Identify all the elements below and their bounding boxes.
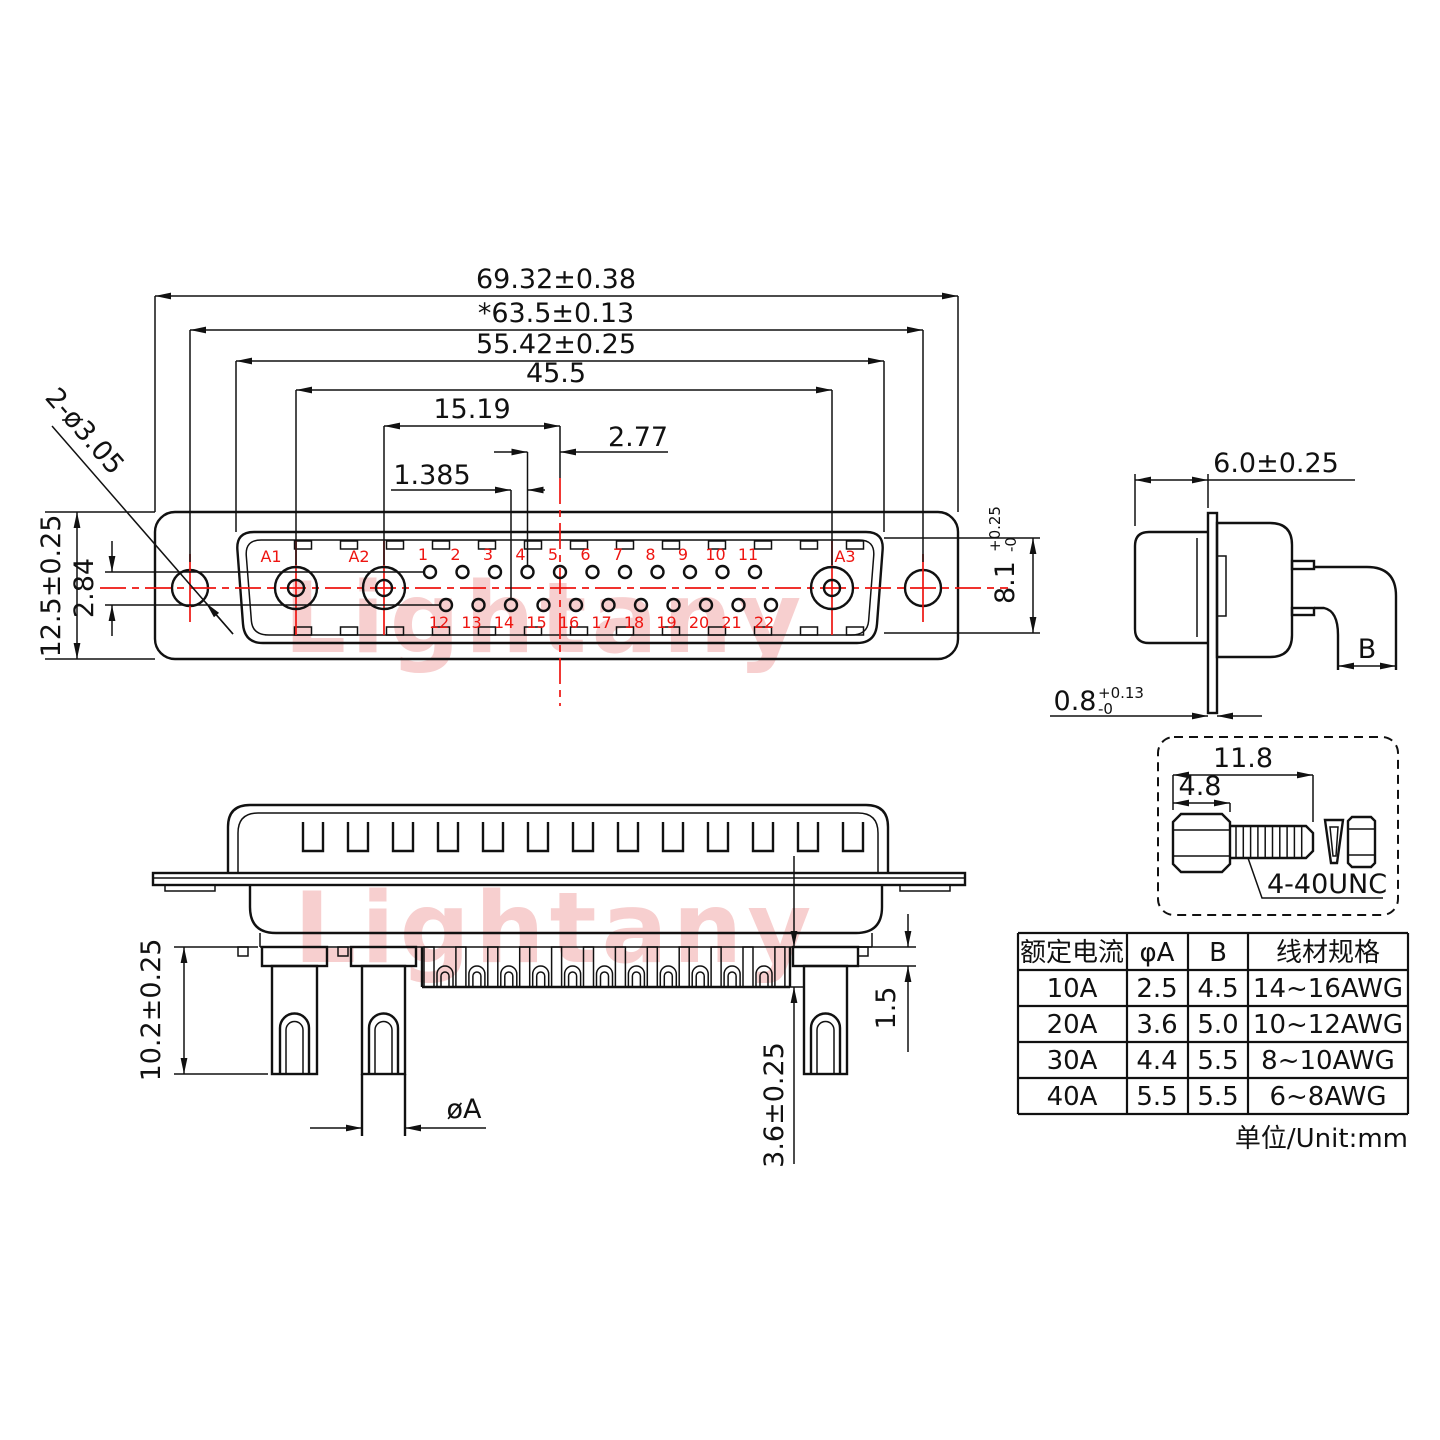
pin-label: 19 <box>656 613 676 632</box>
shell-slot <box>708 822 728 851</box>
technical-drawing-canvas: Lightany Lightany A1A2A31234567891011121… <box>0 0 1440 1440</box>
dim-flange-tol-minus: -0 <box>1098 700 1113 718</box>
pin-label: 8 <box>645 545 655 564</box>
pin-label: 2 <box>450 545 460 564</box>
pin-label: 16 <box>559 613 579 632</box>
table-cell: 20A <box>1047 1010 1098 1040</box>
pin-label: 11 <box>738 545 758 564</box>
pin-label: 17 <box>591 613 611 632</box>
thread-label: 4-40UNC <box>1267 869 1387 900</box>
pin-label: 20 <box>689 613 709 632</box>
table-header-phia: φA <box>1140 938 1175 968</box>
table-cell: 10~12AWG <box>1253 1010 1403 1040</box>
dim-flange-thickness: 0.8 <box>1054 686 1097 717</box>
pin-label: 4 <box>515 545 525 564</box>
pin-label: 9 <box>678 545 688 564</box>
table-header-current: 额定电流 <box>1020 938 1124 968</box>
shell-slot <box>393 822 413 851</box>
dim-pitch: 2.77 <box>608 422 668 453</box>
shell-slot <box>483 822 503 851</box>
shell-slot <box>303 822 323 851</box>
table-cell: 40A <box>1047 1082 1098 1112</box>
table-cell: 4.5 <box>1197 974 1238 1004</box>
unit-note: 单位/Unit:mm <box>1235 1124 1408 1154</box>
shell-slot <box>798 822 818 851</box>
side-flange-plate <box>1208 513 1217 713</box>
side-body <box>1217 523 1292 657</box>
shell-slot <box>348 822 368 851</box>
connector-drawing-page: Lightany Lightany A1A2A31234567891011121… <box>0 0 1440 1440</box>
dim-opening-height-group: 8.1 +0.25 -0 <box>986 506 1021 604</box>
dim-half-pitch: 1.385 <box>393 460 470 491</box>
dim-power-pin-length: 10.2±0.25 <box>136 939 167 1082</box>
dim-opening-tol-minus: -0 <box>1002 537 1020 552</box>
pin-label: 3 <box>483 545 493 564</box>
screw-head <box>1173 814 1230 872</box>
side-nozzle-top <box>1292 561 1314 569</box>
pin-label: 14 <box>494 613 514 632</box>
dim-screw-total: 11.8 <box>1213 743 1273 774</box>
table-cell: 6~8AWG <box>1269 1082 1386 1112</box>
dim-opening-height: 8.1 <box>990 561 1021 604</box>
dim-row-spacing: 2.84 <box>69 558 100 618</box>
pin-label: 6 <box>580 545 590 564</box>
pin-label: 15 <box>526 613 546 632</box>
screw-thread-hatch <box>1236 826 1302 858</box>
pin-label: 18 <box>624 613 644 632</box>
table-cell: 5.5 <box>1197 1082 1238 1112</box>
power-pin-label: A1 <box>260 547 281 566</box>
table-cell: 10A <box>1047 974 1098 1004</box>
screw-detail: 11.8 4.8 4-40UNC <box>1158 737 1398 915</box>
shell-tick <box>295 541 312 549</box>
table-cell: 14~16AWG <box>1253 974 1403 1004</box>
table-header-wire: 线材规格 <box>1276 938 1380 968</box>
table-cell: 30A <box>1047 1046 1098 1076</box>
pin-label: 5 <box>548 545 558 564</box>
table-cell: 5.5 <box>1197 1046 1238 1076</box>
spec-table: 额定电流 φA B 线材规格 10A 2.5 4.5 14~16AWG 20A … <box>1018 933 1408 1154</box>
table-header-b: B <box>1209 938 1227 968</box>
rear-shell-inner <box>238 813 878 873</box>
pin-label: 13 <box>461 613 481 632</box>
shell-tick <box>387 541 404 549</box>
table-cell: 4.4 <box>1136 1046 1177 1076</box>
rear-shell-outer <box>228 805 888 873</box>
shell-slot <box>528 822 548 851</box>
side-nozzle-bottom <box>1292 608 1314 615</box>
wedge-part-inner <box>1330 827 1338 856</box>
shell-slot <box>753 822 773 851</box>
dim-signal-pin-length: 3.6±0.25 <box>759 1042 790 1168</box>
table-cell: 8~10AWG <box>1261 1046 1395 1076</box>
pin-label: 1 <box>418 545 428 564</box>
shell-tick <box>433 541 450 549</box>
dim-power-pin-dia: øA <box>447 1094 483 1125</box>
table-cell: 5.5 <box>1136 1082 1177 1112</box>
dim-a2-to-center: 15.19 <box>433 394 510 425</box>
power-pin-label: A2 <box>348 547 369 566</box>
dim-shoulder-height: 1.5 <box>871 987 902 1030</box>
dim-power-span: 45.5 <box>526 358 586 389</box>
shell-slot <box>618 822 638 851</box>
dim-overall-width: 69.32±0.38 <box>476 264 636 295</box>
table-cell: 3.6 <box>1136 1010 1177 1040</box>
screw-thread-body <box>1230 826 1313 858</box>
side-wire-outer <box>1314 567 1396 670</box>
pin-label: 22 <box>754 613 774 632</box>
dim-mount-holes: 2-ø3.05 <box>39 382 130 480</box>
pin-label: 7 <box>613 545 623 564</box>
side-insulator-edge <box>1217 556 1226 616</box>
dim-screw-head: 4.8 <box>1179 771 1222 802</box>
side-wire-inner <box>1314 608 1338 670</box>
shell-slot <box>573 822 593 851</box>
shell-slot <box>438 822 458 851</box>
shell-slot <box>843 822 863 851</box>
shell-tick <box>801 541 818 549</box>
dim-depth: 6.0±0.25 <box>1213 448 1339 479</box>
side-dimension-lines <box>1050 474 1396 716</box>
shell-slot <box>663 822 683 851</box>
rear-view: 10.2±0.25 øA 3.6±0.25 1.5 <box>136 805 965 1168</box>
power-pin-label: A3 <box>834 547 855 566</box>
table-cell: 2.5 <box>1136 974 1177 1004</box>
rear-shell-slots <box>303 822 863 851</box>
dim-shell-width: 55.42±0.25 <box>476 329 636 360</box>
table-cell: 5.0 <box>1197 1010 1238 1040</box>
dim-flange-height: 12.5±0.25 <box>36 515 67 658</box>
pin-label: 10 <box>705 545 725 564</box>
nut-part <box>1348 817 1375 867</box>
dim-wire-width: B <box>1358 634 1377 665</box>
pin-label: 12 <box>429 613 449 632</box>
pin-label: 21 <box>721 613 741 632</box>
side-view: 6.0±0.25 0.8 +0.13 -0 B <box>1050 448 1396 718</box>
dim-mount-spacing: *63.5±0.13 <box>478 298 634 329</box>
